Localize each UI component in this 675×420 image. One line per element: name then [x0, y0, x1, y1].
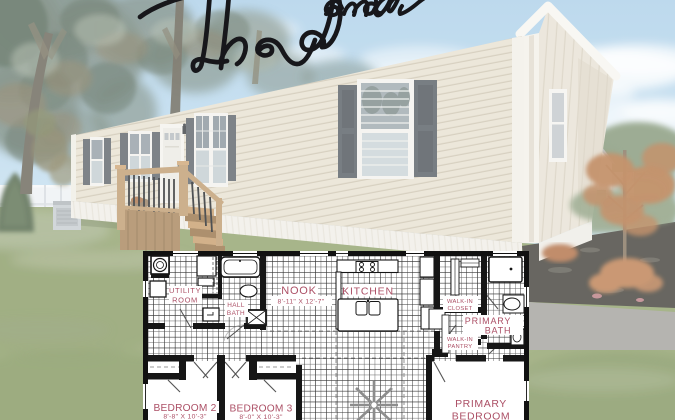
svg-text:PRIMARY: PRIMARY — [465, 316, 511, 326]
svg-text:WALK-IN: WALK-IN — [447, 299, 473, 305]
svg-text:BATH: BATH — [485, 326, 512, 336]
svg-text:HALL: HALL — [227, 302, 245, 309]
svg-text:8'-11" X 12'-7": 8'-11" X 12'-7" — [278, 299, 325, 306]
svg-text:KITCHEN: KITCHEN — [342, 286, 394, 298]
svg-text:CLOSET: CLOSET — [448, 306, 473, 312]
svg-text:8'-8" X 10'-3": 8'-8" X 10'-3" — [163, 414, 207, 420]
svg-text:PRIMARY: PRIMARY — [455, 398, 507, 410]
svg-text:8'-0" X 10'-3": 8'-0" X 10'-3" — [239, 414, 283, 420]
svg-text:BEDROOM: BEDROOM — [452, 411, 510, 420]
svg-text:BATH: BATH — [227, 310, 245, 317]
svg-text:BEDROOM 3: BEDROOM 3 — [230, 404, 293, 415]
svg-text:ROOM: ROOM — [172, 296, 198, 305]
svg-text:UTILITY: UTILITY — [169, 286, 201, 295]
svg-text:PANTRY: PANTRY — [448, 344, 473, 350]
svg-text:WALK-IN: WALK-IN — [447, 337, 473, 343]
svg-text:BEDROOM 2: BEDROOM 2 — [154, 403, 217, 414]
svg-text:NOOK: NOOK — [281, 285, 317, 297]
